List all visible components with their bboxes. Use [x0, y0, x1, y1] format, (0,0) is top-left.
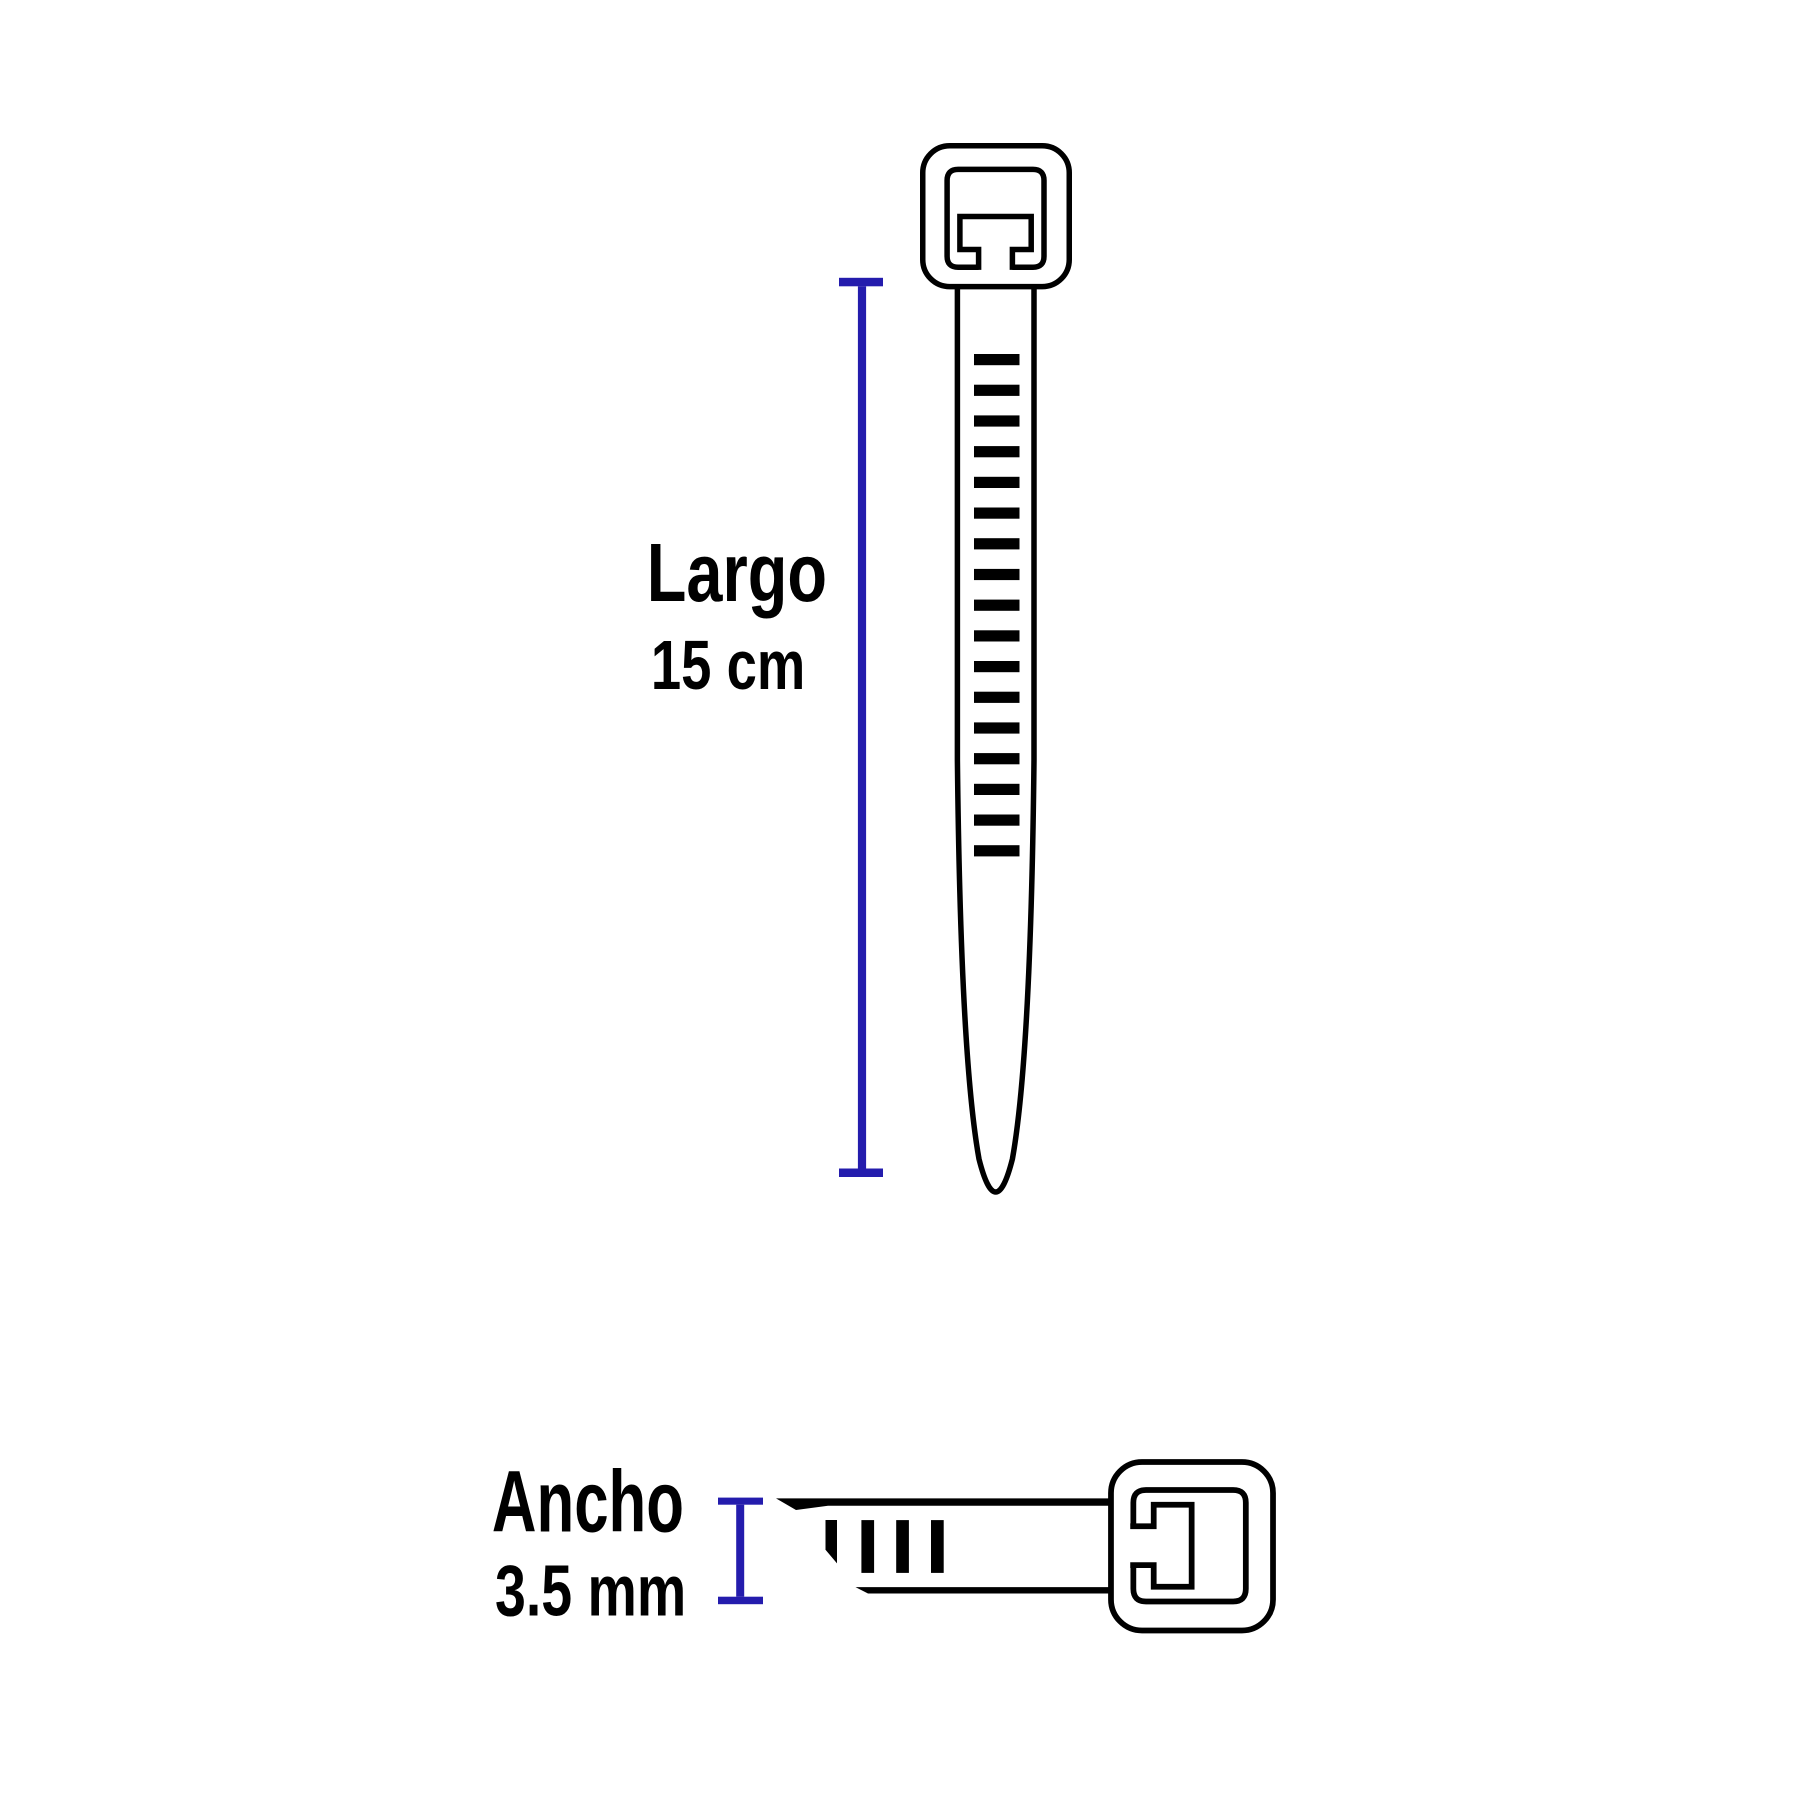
- svg-text:15 cm: 15 cm: [651, 627, 805, 705]
- svg-text:Largo: Largo: [647, 526, 827, 618]
- svg-text:Ancho: Ancho: [492, 1453, 684, 1550]
- svg-text:3.5 mm: 3.5 mm: [495, 1549, 686, 1631]
